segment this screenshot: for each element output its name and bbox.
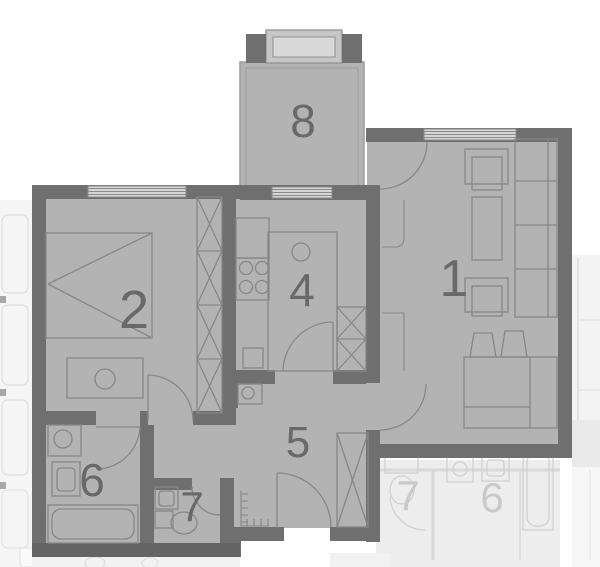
window-bedroom [88, 186, 186, 197]
entrance-opening [284, 528, 330, 541]
room-label-wc: 7 [180, 483, 203, 530]
floor-plan-page: 7 6 [0, 0, 600, 567]
neighbor-apartment-right [572, 255, 600, 567]
window-living-room [424, 129, 516, 140]
room-label-balcony: 8 [290, 95, 316, 147]
room-label-bathroom: 6 [79, 454, 105, 506]
room-label-living-room: 1 [440, 250, 469, 308]
neighbor-room-label-7: 7 [396, 472, 419, 519]
floor-plan-drawing: 7 6 [0, 0, 600, 567]
room-label-bedroom: 2 [119, 280, 149, 340]
neighbor-room-label-6: 6 [480, 474, 503, 521]
room-label-kitchen: 4 [289, 264, 315, 316]
room-label-hallway: 5 [286, 418, 310, 467]
window-kitchen [272, 187, 332, 198]
